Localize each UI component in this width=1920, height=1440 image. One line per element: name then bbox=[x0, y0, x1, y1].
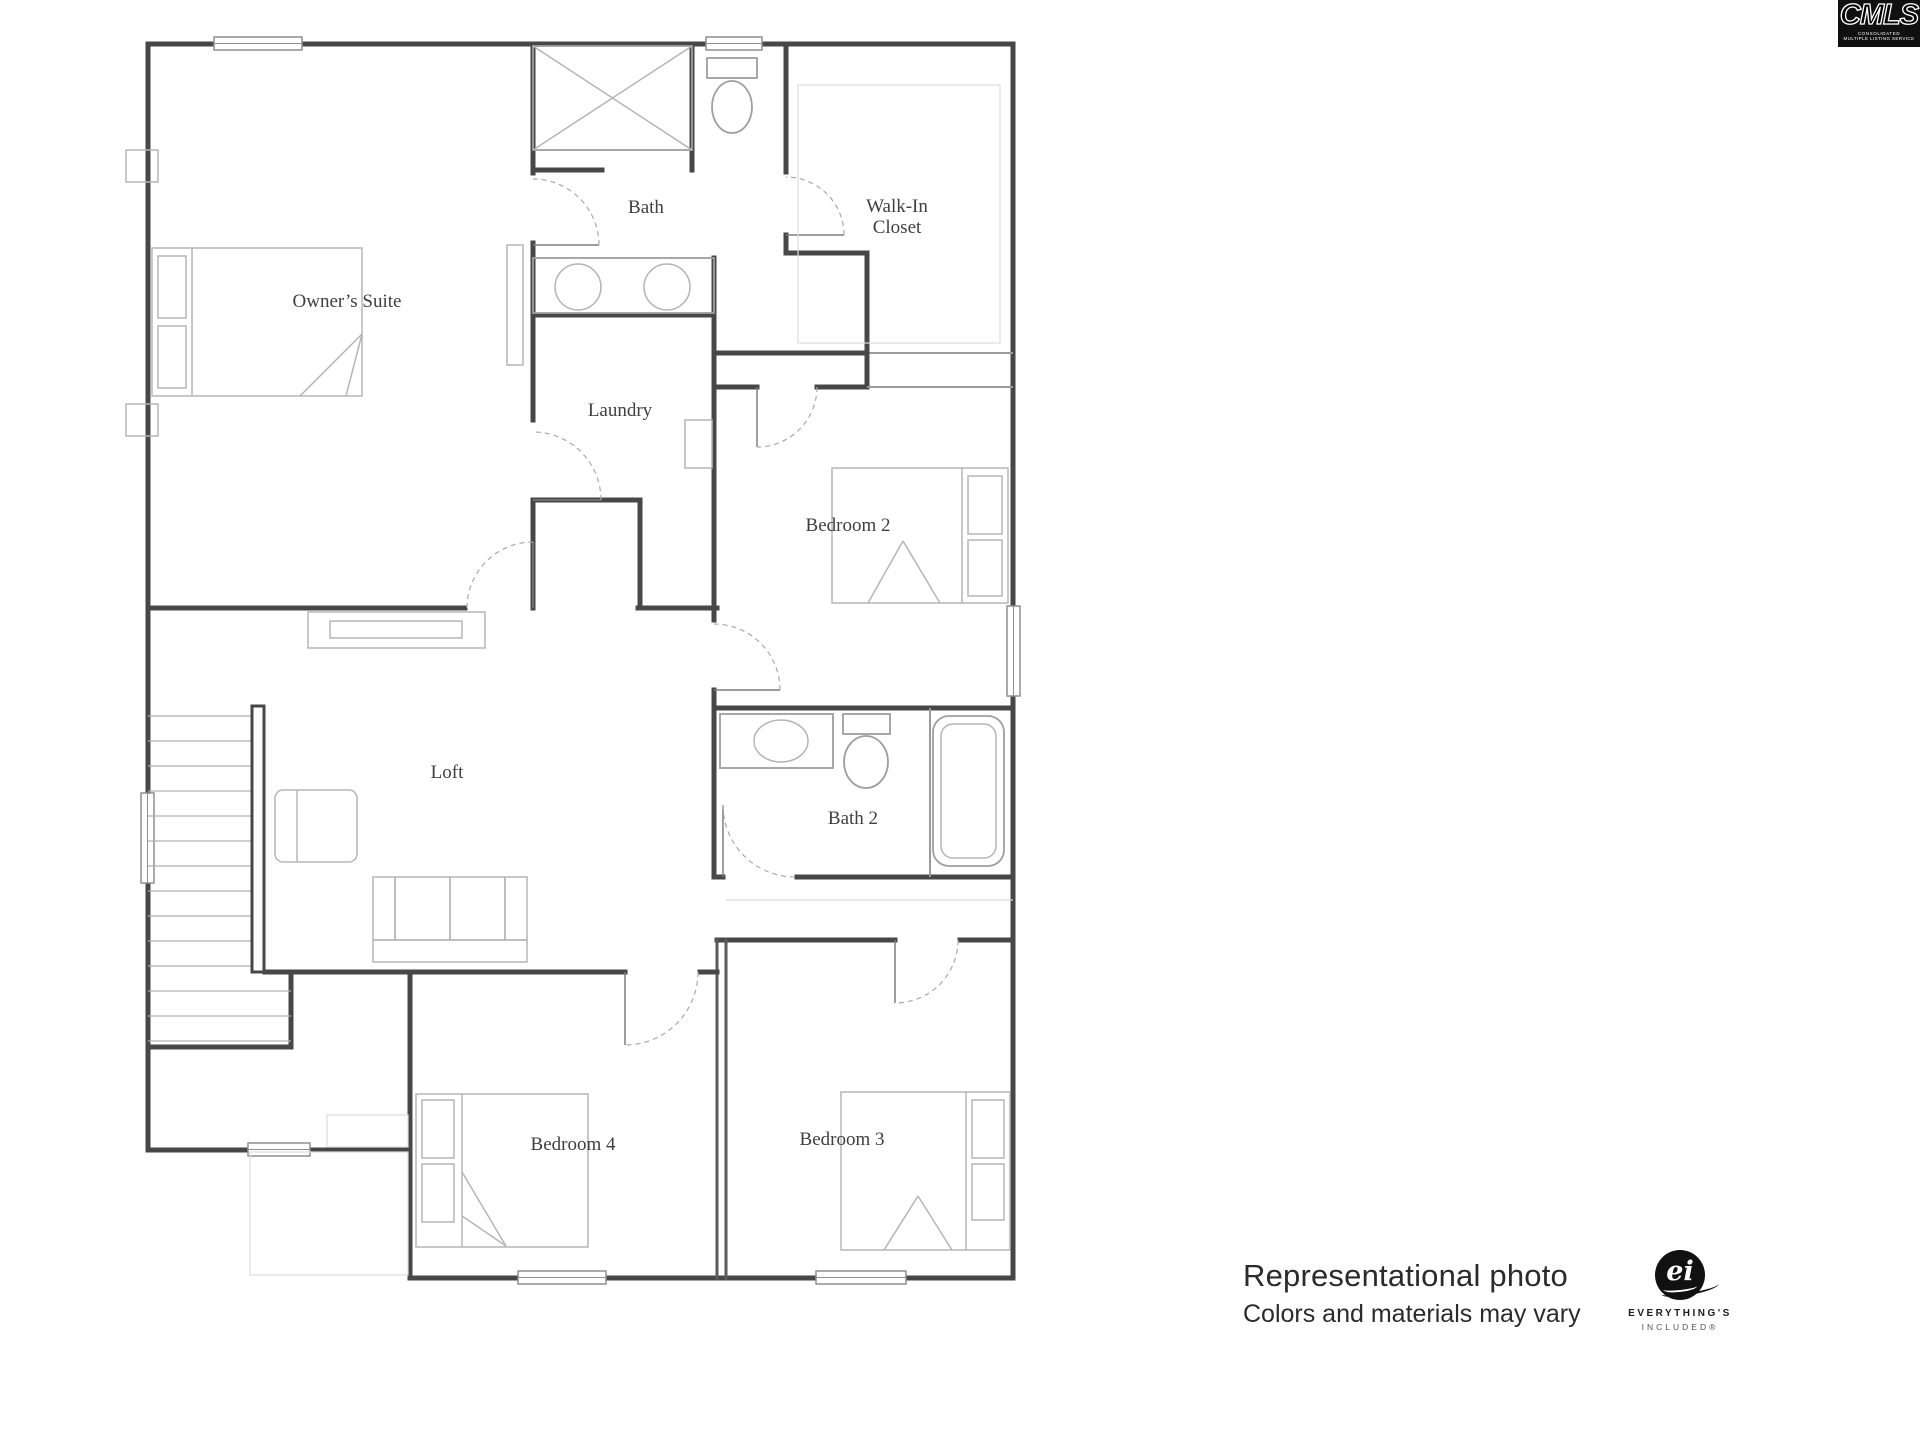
page: Owner’s Suite Bath Walk-In Closet Laundr… bbox=[0, 0, 1920, 1440]
cmls-wordmark: CMLS bbox=[1838, 0, 1920, 31]
bedroom4-door bbox=[625, 972, 698, 1045]
window-icon bbox=[214, 37, 302, 50]
label-bedroom-4: Bedroom 4 bbox=[531, 1134, 616, 1155]
window-icon bbox=[141, 793, 154, 883]
ei-wordmark-line2: INCLUDED® bbox=[1620, 1322, 1740, 1332]
floor-plan: Owner’s Suite Bath Walk-In Closet Laundr… bbox=[0, 0, 1920, 1440]
label-walk-in-closet-line1: Walk-In bbox=[866, 196, 928, 217]
nightstand-icon bbox=[126, 150, 158, 182]
everythings-included-logo: ei EVERYTHING'S INCLUDED® bbox=[1620, 1250, 1740, 1332]
owners-suite-mirror bbox=[507, 245, 523, 365]
window-icon bbox=[1007, 606, 1020, 696]
stair-rail bbox=[252, 706, 264, 972]
disclaimer-line1: Representational photo bbox=[1243, 1258, 1581, 1294]
laundry-door bbox=[533, 432, 601, 500]
bath-vanity-icon bbox=[533, 258, 714, 313]
owners-bath-door bbox=[533, 179, 599, 245]
owners-suite-door bbox=[467, 542, 533, 608]
cmls-logo: CMLS CONSOLIDATED MULTIPLE LISTING SERVI… bbox=[1838, 0, 1920, 47]
label-bath: Bath bbox=[628, 197, 664, 218]
disclaimer: Representational photo Colors and materi… bbox=[1243, 1258, 1581, 1329]
roof-below-outline bbox=[250, 1152, 408, 1275]
bedroom4-bed bbox=[416, 1094, 588, 1247]
bedroom2-door bbox=[714, 624, 780, 690]
label-bedroom-2: Bedroom 2 bbox=[806, 515, 891, 536]
loft-armchair bbox=[275, 790, 357, 862]
label-owners-suite: Owner’s Suite bbox=[293, 291, 402, 312]
loft-console-table bbox=[308, 612, 485, 648]
cmls-caption-line2: MULTIPLE LISTING SERVICE bbox=[1838, 36, 1920, 41]
nightstand-icon bbox=[126, 404, 158, 436]
owners-suite-bed bbox=[152, 248, 362, 396]
bath2-toilet-icon bbox=[843, 714, 890, 788]
bedroom2-closet-door bbox=[757, 387, 817, 447]
walk-in-closet-door bbox=[786, 177, 844, 235]
label-walk-in-closet-line2: Closet bbox=[873, 217, 922, 238]
ei-wordmark-line1: EVERYTHING'S bbox=[1620, 1308, 1740, 1319]
shower-icon bbox=[533, 46, 692, 150]
window-icon bbox=[706, 37, 762, 50]
bathtub-icon bbox=[933, 716, 1004, 866]
ei-monogram-icon: ei bbox=[1655, 1250, 1705, 1300]
window-icon bbox=[816, 1271, 906, 1284]
bedroom3-door bbox=[895, 940, 958, 1003]
toilet-icon bbox=[707, 58, 757, 133]
storage-dresser bbox=[327, 1115, 408, 1147]
staircase bbox=[148, 706, 291, 1041]
label-laundry: Laundry bbox=[588, 400, 653, 421]
laundry-unit bbox=[685, 420, 712, 468]
bath2-vanity-icon bbox=[720, 714, 833, 768]
label-bedroom-3: Bedroom 3 bbox=[800, 1129, 885, 1150]
loft-sofa bbox=[373, 877, 527, 962]
disclaimer-line2: Colors and materials may vary bbox=[1243, 1300, 1581, 1329]
label-loft: Loft bbox=[431, 762, 464, 783]
window-icon bbox=[518, 1271, 606, 1284]
label-bath-2: Bath 2 bbox=[828, 808, 878, 829]
room-labels: Owner’s Suite Bath Walk-In Closet Laundr… bbox=[293, 196, 929, 1155]
bedroom3-bed bbox=[841, 1092, 1010, 1250]
bath2-door bbox=[723, 805, 795, 877]
window-icon bbox=[248, 1143, 310, 1156]
